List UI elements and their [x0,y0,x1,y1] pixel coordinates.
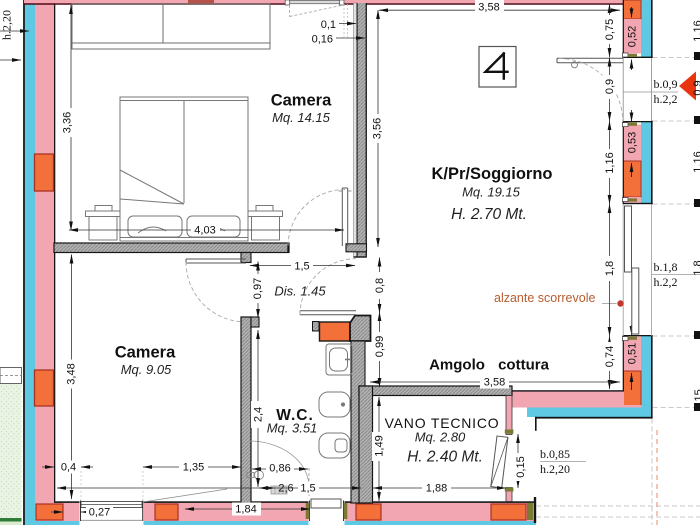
svg-text:0,52: 0,52 [627,26,639,47]
svg-text:0,9: 0,9 [692,80,700,95]
svg-text:1,49: 1,49 [374,435,386,456]
svg-text:3,36: 3,36 [62,112,74,133]
svg-text:3,58: 3,58 [478,2,499,14]
svg-text:3,48: 3,48 [66,363,78,384]
svg-text:0,51: 0,51 [627,343,639,364]
svg-text:1,15: 1,15 [693,389,700,410]
svg-text:h.2,20: h.2,20 [540,462,570,476]
svg-text:3,56: 3,56 [372,118,384,139]
svg-text:0,15: 0,15 [515,456,527,477]
svg-text:0,53: 0,53 [627,132,639,153]
svg-text:0,74: 0,74 [604,346,616,367]
svg-text:1,35: 1,35 [183,462,204,474]
svg-text:Mq. 2.80: Mq. 2.80 [415,430,466,445]
svg-text:H. 2.40 Mt.: H. 2.40 Mt. [407,449,483,466]
svg-text:1,5: 1,5 [294,260,309,272]
svg-text:0,1: 0,1 [321,19,336,31]
svg-text:1,16: 1,16 [692,151,700,172]
svg-text:3,58: 3,58 [484,377,505,389]
svg-text:h.2,2: h.2,2 [654,275,678,289]
svg-text:0,27: 0,27 [89,507,110,519]
svg-text:Mq. 14.15: Mq. 14.15 [272,110,331,125]
svg-text:1,8: 1,8 [604,261,616,276]
svg-text:1,88: 1,88 [426,483,447,495]
svg-text:1,8: 1,8 [692,260,700,275]
svg-text:alzante scorrevole: alzante scorrevole [494,291,595,305]
svg-text:Dis. 1.45: Dis. 1.45 [274,284,326,299]
svg-text:0,8: 0,8 [374,278,386,293]
svg-text:2,4: 2,4 [253,407,265,422]
svg-text:h.2,2: h.2,2 [654,92,678,106]
svg-text:0,86: 0,86 [269,463,290,475]
svg-text:0,4: 0,4 [61,462,76,474]
svg-text:Mq. 9.05: Mq. 9.05 [121,362,172,377]
svg-text:0,75: 0,75 [604,19,616,40]
svg-text:Amgolo cottura: Amgolo cottura [429,357,549,374]
svg-text:h.2,20: h.2,20 [0,10,14,40]
svg-text:K/Pr/Soggiorno: K/Pr/Soggiorno [432,165,553,183]
svg-text:0,99: 0,99 [374,336,386,357]
svg-text:0,97: 0,97 [252,278,264,299]
svg-text:Mq. 19.15: Mq. 19.15 [462,185,521,200]
svg-text:1,16: 1,16 [692,20,700,41]
svg-text:b.0,85: b.0,85 [540,447,570,461]
svg-text:0,16: 0,16 [312,34,333,46]
svg-text:Camera: Camera [271,92,332,110]
svg-text:1,84: 1,84 [235,504,256,516]
svg-text:1,16: 1,16 [604,152,616,173]
svg-text:Mq. 3.51: Mq. 3.51 [267,421,318,436]
svg-text:0,9: 0,9 [604,79,616,94]
svg-text:Camera: Camera [115,344,176,362]
svg-text:b.1,8: b.1,8 [654,260,678,274]
svg-text:2,6: 2,6 [278,483,293,495]
svg-text:4,03: 4,03 [194,225,215,237]
svg-text:b.0,9: b.0,9 [654,77,678,91]
svg-text:1,5: 1,5 [300,483,315,495]
svg-text:H. 2.70 Mt.: H. 2.70 Mt. [451,206,527,223]
